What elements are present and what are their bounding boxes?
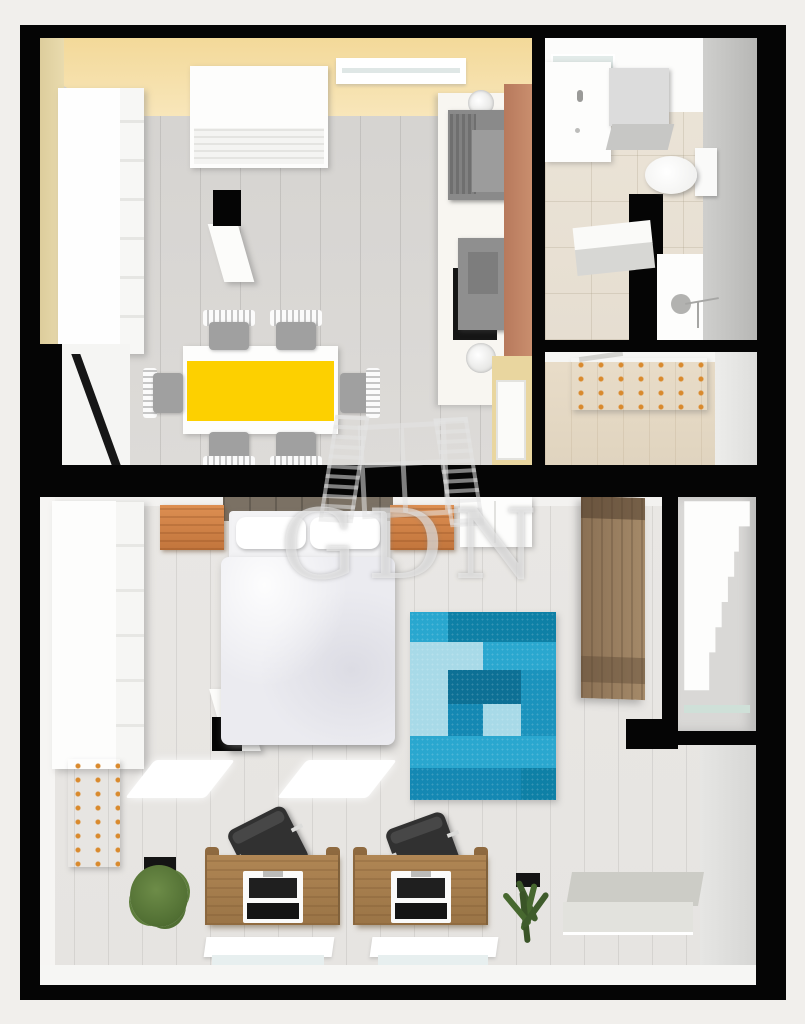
lower-wardrobe — [52, 501, 144, 769]
floorplan-canvas: GDN — [0, 0, 805, 1024]
white-rug — [277, 760, 397, 798]
south-window-sill — [204, 937, 335, 957]
pillow — [236, 517, 306, 549]
nightstand — [390, 505, 454, 550]
room-bathroom — [545, 38, 757, 340]
chair-seat — [153, 373, 183, 413]
partition-wall — [573, 220, 656, 278]
hall-radiator — [571, 358, 707, 410]
kitchen-door — [496, 380, 526, 460]
stair-landing — [684, 705, 750, 713]
tall-wardrobe — [581, 497, 645, 700]
chair-back — [203, 456, 255, 465]
chair — [143, 368, 185, 418]
washing-machine — [609, 68, 669, 126]
desk — [205, 855, 340, 925]
computer-screen — [249, 878, 297, 898]
chair — [270, 310, 322, 352]
armrest — [291, 823, 304, 832]
vanity-sink — [545, 62, 611, 162]
bedroom-south-wall — [40, 965, 756, 985]
computer-hinge — [411, 871, 431, 877]
nightstand — [160, 505, 224, 550]
blue-rug — [410, 612, 556, 800]
plant-left — [128, 853, 190, 933]
chair-backrest — [389, 815, 444, 845]
chair — [203, 430, 255, 465]
plant-right — [502, 869, 552, 955]
staircase-steps — [678, 497, 756, 707]
wardrobe-bottom-band — [581, 656, 645, 684]
computer-keyboard — [395, 903, 447, 919]
dresser-divider — [494, 501, 496, 543]
room-bedroom-studio — [40, 497, 756, 985]
chair-back — [270, 456, 322, 465]
computer-keyboard — [247, 903, 299, 919]
chair-back — [366, 368, 380, 418]
wardrobe-top-band — [581, 497, 645, 520]
chair-seat — [209, 322, 249, 350]
wall-stub-vertical — [662, 497, 678, 719]
plant-foliage — [130, 865, 188, 927]
upper-wardrobe — [58, 88, 144, 354]
computer — [243, 871, 303, 923]
sideboard-shelves — [194, 128, 324, 164]
stairwell — [678, 497, 756, 731]
room-kitchen-dining — [40, 38, 532, 465]
chair-seat — [276, 322, 316, 350]
computer — [391, 871, 451, 923]
southeast-radiator — [563, 872, 701, 934]
shower-pipe — [697, 302, 699, 328]
wall-stub-horizontal-2 — [678, 731, 756, 745]
white-dresser — [460, 497, 532, 547]
chimney-upper-body — [208, 224, 255, 282]
bedroom-east-wall — [700, 745, 756, 985]
radiator-top — [566, 872, 704, 906]
faucet — [577, 90, 583, 102]
drain — [575, 128, 580, 133]
pillow — [310, 517, 380, 549]
wardrobe-front-lines — [116, 501, 144, 769]
radiator-front — [563, 902, 693, 932]
kitchen-window — [336, 58, 466, 84]
chair — [203, 310, 255, 352]
toilet-bowl — [645, 156, 697, 194]
chimney-upper-cap — [213, 190, 241, 226]
toilet-tank — [695, 148, 717, 196]
chair-backrest — [231, 809, 286, 845]
rug-texture — [410, 612, 556, 800]
stove — [448, 110, 506, 200]
chair — [338, 368, 380, 418]
table-runner-yellow — [187, 361, 334, 421]
west-radiator — [68, 759, 120, 867]
desk — [353, 855, 488, 925]
bed-duvet — [221, 557, 395, 745]
south-window-sill — [370, 937, 499, 957]
appliance-top — [468, 252, 498, 294]
dining-table — [183, 346, 338, 434]
computer-hinge — [263, 871, 283, 877]
sideboard — [190, 66, 328, 168]
southeast-wall-yellow — [492, 356, 532, 465]
window-glass — [342, 68, 460, 73]
computer-screen — [397, 878, 445, 898]
stove-hood — [472, 130, 508, 192]
room-hallway — [545, 352, 757, 465]
wall-stub-horizontal — [626, 719, 678, 749]
wardrobe-front-lines — [120, 88, 144, 354]
hall-east-wall — [715, 352, 757, 465]
chair — [270, 430, 322, 465]
armrest — [447, 830, 460, 838]
washing-machine-front — [606, 124, 674, 150]
